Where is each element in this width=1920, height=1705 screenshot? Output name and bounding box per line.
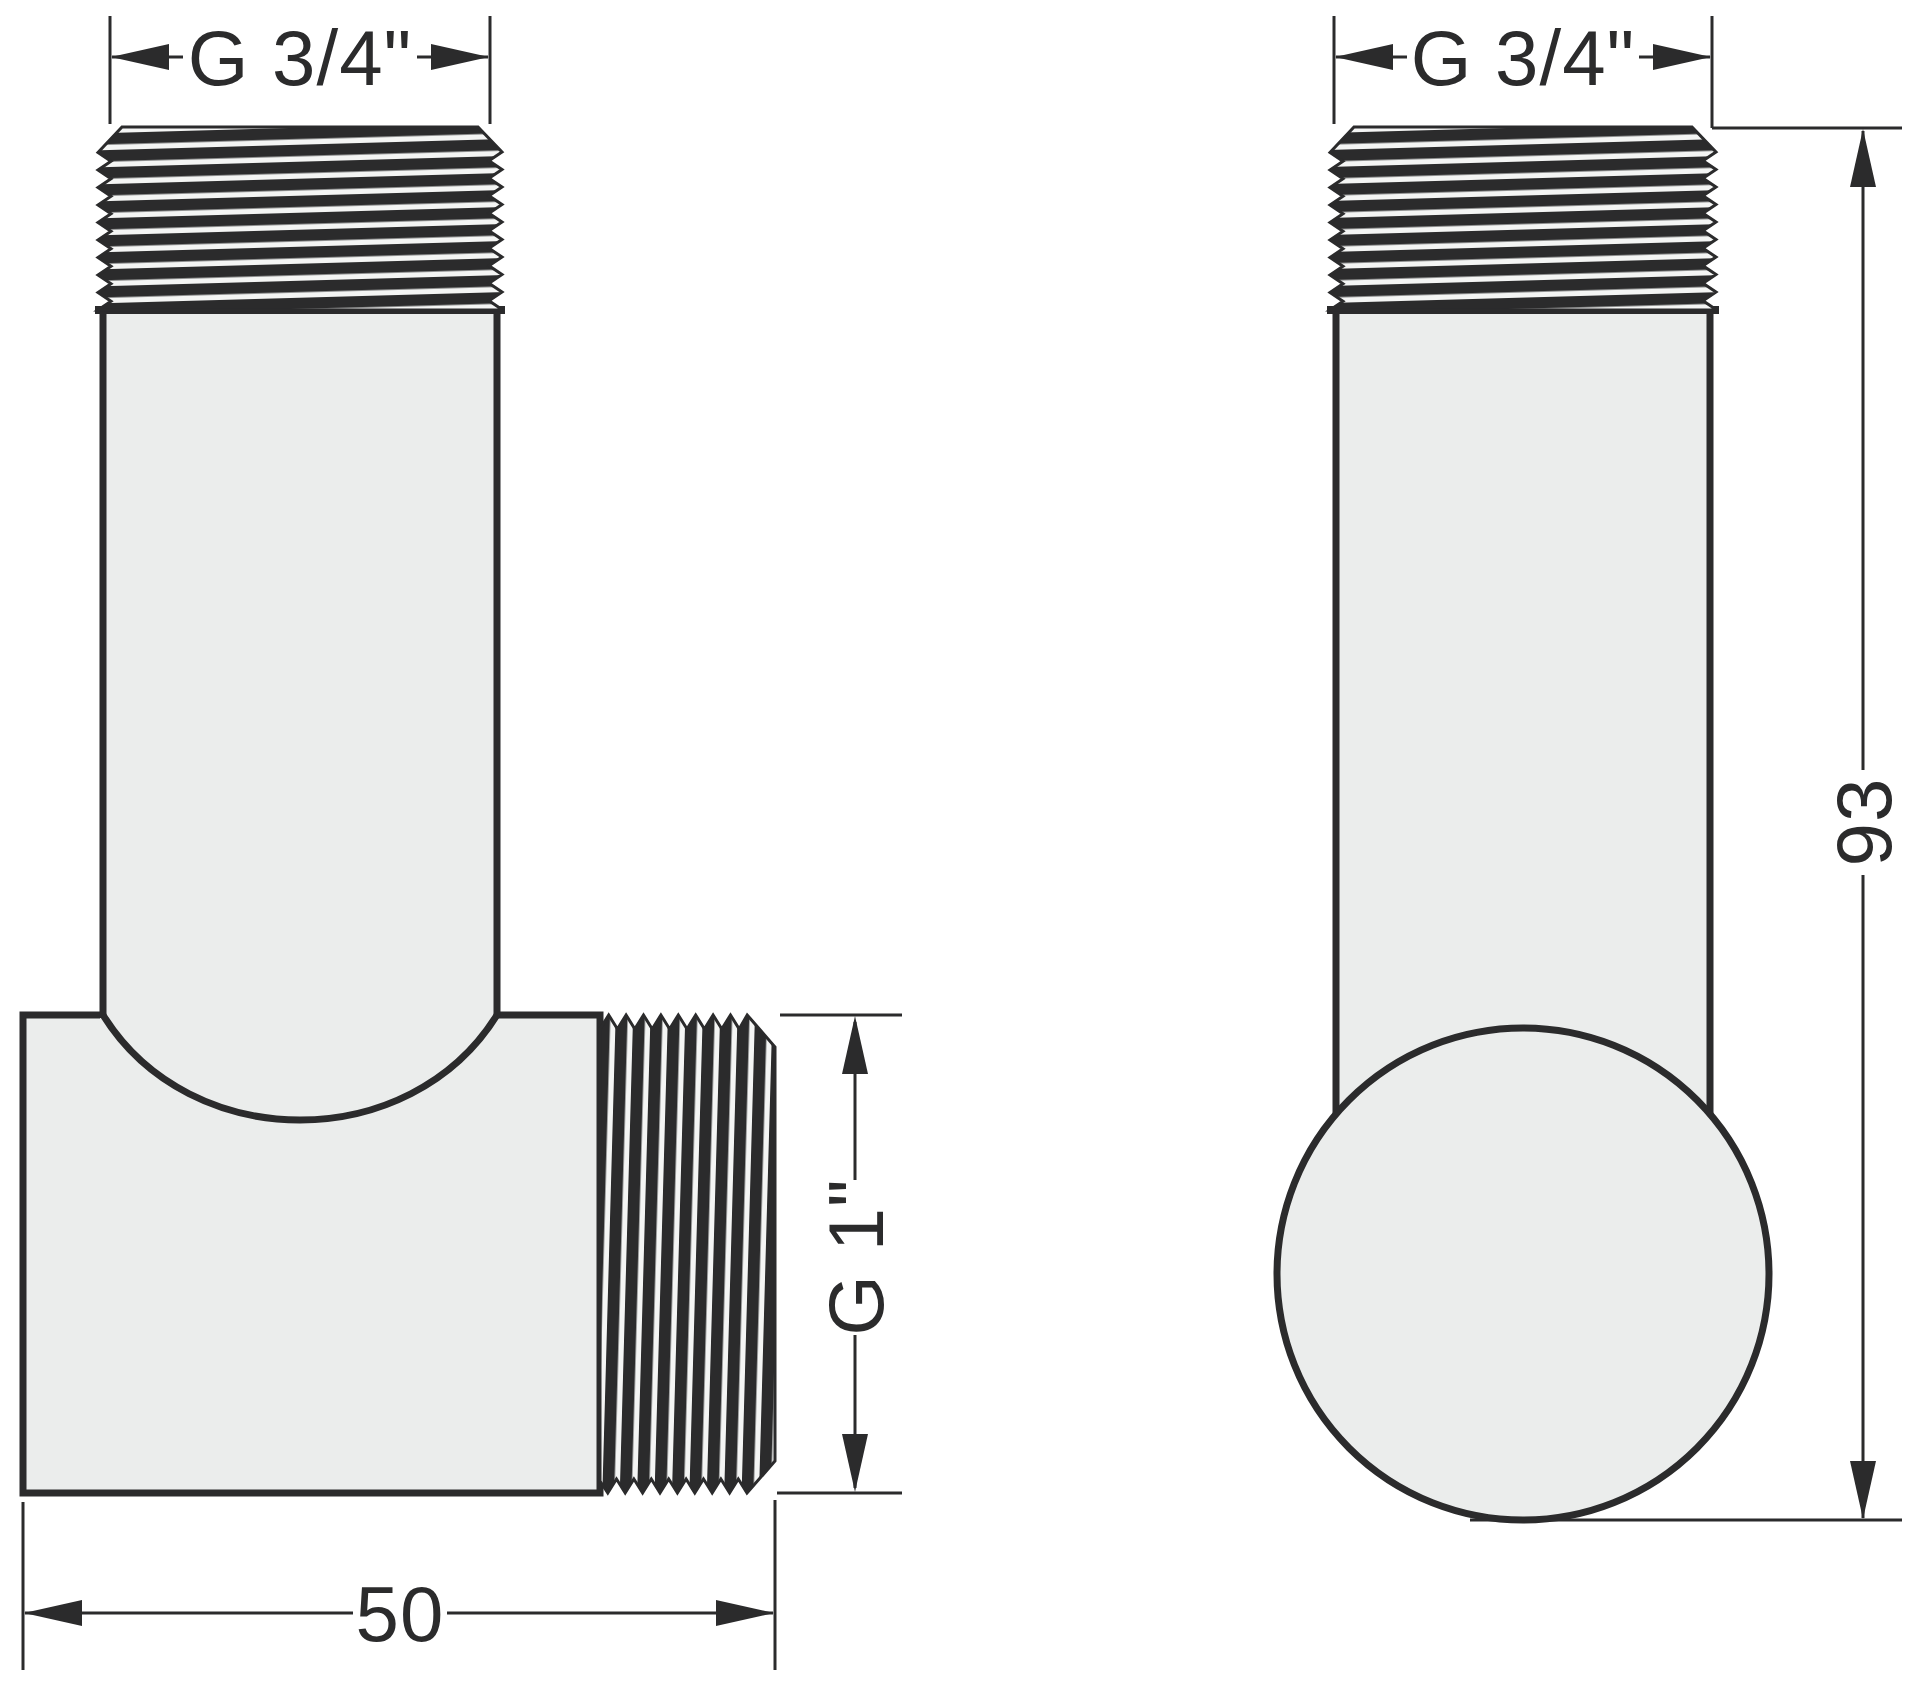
front-view: G 3/4" G 1" 50 [23, 14, 902, 1670]
arrow-left-icon [24, 1600, 82, 1626]
front-pipe-fill [100, 306, 497, 1020]
arrow-left-icon [1335, 44, 1393, 70]
front-body [23, 1015, 600, 1493]
arrow-up-icon [1850, 129, 1876, 187]
arrow-right-icon [716, 1600, 774, 1626]
side-outlet-circle [1277, 1028, 1769, 1520]
front-side-thread-label: G 1" [812, 1178, 900, 1335]
arrow-down-icon [842, 1434, 868, 1492]
side-height-label: 93 [1820, 778, 1908, 867]
side-view: G 3/4" 93 [1277, 14, 1908, 1520]
arrow-left-icon [111, 44, 169, 70]
front-width-label: 50 [356, 1570, 445, 1658]
arrow-right-icon [1653, 44, 1711, 70]
front-top-thread-label: G 3/4" [188, 14, 412, 102]
side-top-thread-label: G 3/4" [1411, 14, 1635, 102]
drawing-stage: G 3/4" G 1" 50 [0, 0, 1920, 1705]
front-top-thread [98, 127, 502, 310]
arrow-up-icon [842, 1016, 868, 1074]
arrow-down-icon [1850, 1461, 1876, 1519]
arrow-right-icon [431, 44, 489, 70]
side-top-thread [1330, 127, 1716, 310]
technical-drawing: G 3/4" G 1" 50 [0, 0, 1920, 1705]
front-side-thread [600, 1015, 775, 1493]
